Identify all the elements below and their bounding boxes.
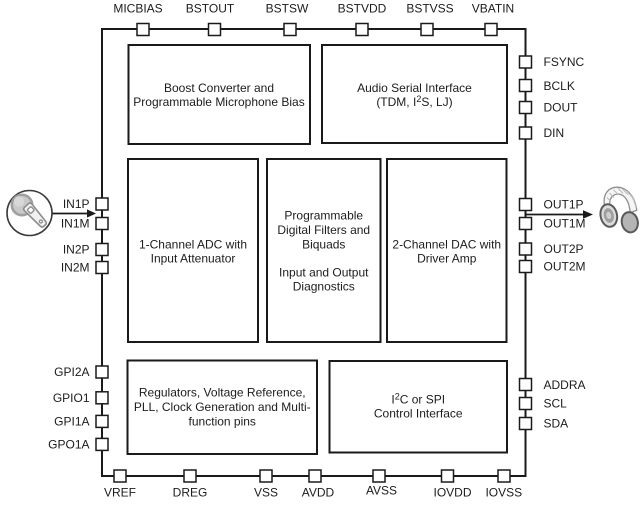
- svg-text:SCL: SCL: [544, 397, 568, 411]
- svg-text:Regulators, Voltage Reference,: Regulators, Voltage Reference,: [139, 386, 306, 400]
- svg-text:GPO1A: GPO1A: [48, 438, 89, 452]
- svg-text:AVDD: AVDD: [302, 486, 335, 500]
- svg-text:MICBIAS: MICBIAS: [113, 1, 162, 15]
- svg-text:VSS: VSS: [254, 486, 278, 500]
- svg-text:Diagnostics: Diagnostics: [293, 280, 355, 294]
- svg-text:Control Interface: Control Interface: [374, 407, 463, 421]
- svg-text:2-Channel DAC with: 2-Channel DAC with: [392, 238, 501, 252]
- svg-text:1-Channel ADC with: 1-Channel ADC with: [139, 238, 247, 252]
- svg-text:PLL, Clock Generation and Mult: PLL, Clock Generation and Multi-: [134, 400, 311, 414]
- svg-text:BSTOUT: BSTOUT: [186, 1, 235, 15]
- svg-text:OUT2M: OUT2M: [544, 260, 586, 274]
- svg-text:OUT2P: OUT2P: [544, 242, 584, 256]
- svg-text:BCLK: BCLK: [544, 79, 575, 93]
- svg-text:ADDRA: ADDRA: [544, 378, 586, 392]
- svg-text:SDA: SDA: [544, 417, 569, 431]
- svg-text:IOVDD: IOVDD: [433, 486, 471, 500]
- svg-text:OUT1M: OUT1M: [544, 217, 586, 231]
- svg-text:Input and Output: Input and Output: [279, 265, 369, 279]
- svg-text:OUT1P: OUT1P: [544, 198, 584, 212]
- svg-text:BSTVDD: BSTVDD: [338, 1, 387, 15]
- svg-text:Driver Amp: Driver Amp: [417, 252, 477, 266]
- svg-text:(TDM, I2S, LJ): (TDM, I2S, LJ): [376, 94, 452, 109]
- svg-text:IN1P: IN1P: [63, 197, 90, 211]
- svg-text:Digital Filters and: Digital Filters and: [277, 223, 370, 237]
- svg-text:I2C or SPI: I2C or SPI: [391, 392, 445, 407]
- svg-text:GPIO1: GPIO1: [53, 391, 90, 405]
- svg-text:function pins: function pins: [189, 415, 256, 429]
- svg-text:IN1M: IN1M: [61, 217, 90, 231]
- svg-text:IN2P: IN2P: [63, 243, 90, 257]
- svg-text:Audio Serial Interface: Audio Serial Interface: [357, 81, 472, 95]
- svg-text:Input Attenuator: Input Attenuator: [151, 252, 236, 266]
- svg-text:AVSS: AVSS: [366, 484, 397, 498]
- svg-text:IN2M: IN2M: [61, 261, 90, 275]
- svg-text:FSYNC: FSYNC: [544, 55, 585, 69]
- svg-text:IOVSS: IOVSS: [485, 486, 522, 500]
- svg-text:Programmable: Programmable: [284, 209, 363, 223]
- svg-text:Boost Converter and: Boost Converter and: [164, 81, 274, 95]
- svg-text:GPI1A: GPI1A: [54, 415, 89, 429]
- svg-text:DREG: DREG: [173, 486, 208, 500]
- svg-text:Programmable Microphone Bias: Programmable Microphone Bias: [133, 95, 304, 109]
- svg-text:GPI2A: GPI2A: [54, 365, 89, 379]
- svg-text:BSTVSS: BSTVSS: [406, 1, 453, 15]
- svg-text:VREF: VREF: [104, 486, 136, 500]
- svg-text:DOUT: DOUT: [544, 101, 579, 115]
- svg-text:DIN: DIN: [544, 126, 565, 140]
- svg-text:BSTSW: BSTSW: [266, 1, 309, 15]
- svg-text:VBATIN: VBATIN: [472, 1, 514, 15]
- svg-text:Biquads: Biquads: [302, 238, 345, 252]
